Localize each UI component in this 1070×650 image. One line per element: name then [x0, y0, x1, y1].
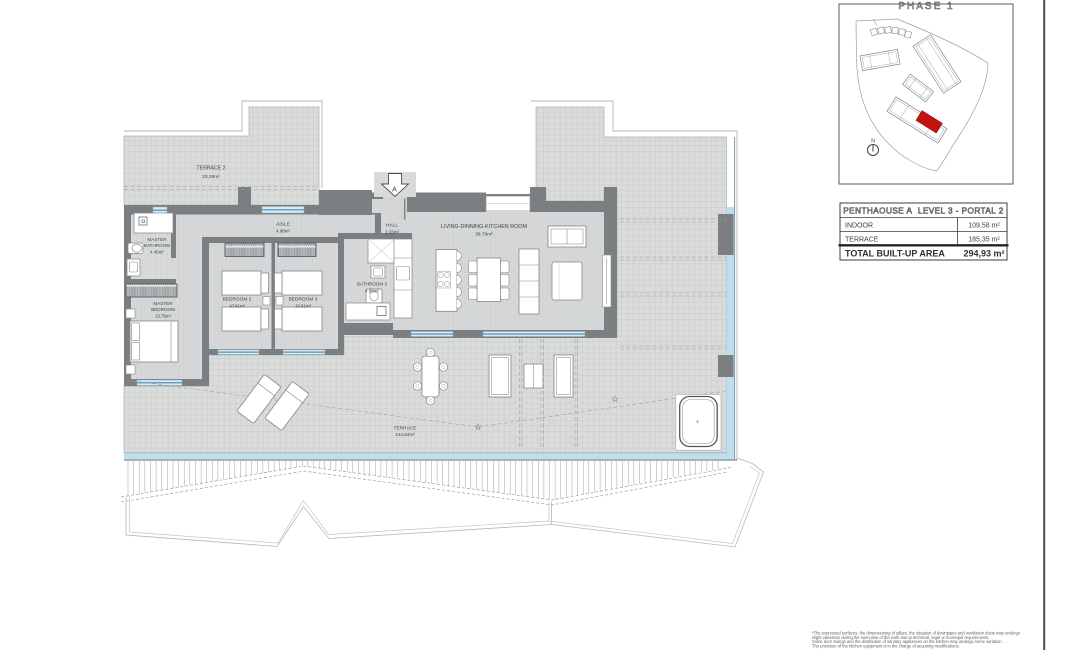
- svg-text:A: A: [392, 187, 397, 194]
- svg-text:TERRACE 2: TERRACE 2: [196, 166, 225, 172]
- svg-text:BEDROOM 3: BEDROOM 3: [289, 297, 318, 303]
- svg-text:4.88m²: 4.88m²: [365, 289, 379, 294]
- svg-text:BATHROOM: BATHROOM: [144, 243, 170, 248]
- svg-text:144.84m²: 144.84m²: [395, 432, 415, 437]
- svg-text:185,35 m²: 185,35 m²: [968, 237, 1000, 244]
- svg-text:TERRACE: TERRACE: [394, 426, 417, 432]
- svg-text:294,93 m²: 294,93 m²: [963, 249, 1004, 259]
- svg-text:BEDROOM 2: BEDROOM 2: [223, 297, 252, 303]
- svg-text:N: N: [871, 139, 875, 145]
- svg-text:BATHROOM 2: BATHROOM 2: [357, 282, 387, 287]
- svg-text:23.28m²: 23.28m²: [202, 174, 220, 180]
- svg-text:TERRACE: TERRACE: [845, 237, 879, 244]
- svg-text:BEDROOM: BEDROOM: [151, 307, 175, 312]
- svg-text:PHASE 1: PHASE 1: [898, 1, 954, 12]
- svg-text:TOTAL BUILT-UP AREA: TOTAL BUILT-UP AREA: [845, 249, 945, 259]
- svg-text:38.79m²: 38.79m²: [475, 232, 493, 238]
- svg-text:PENTHAOUSE A LEVEL 3 - PORTAL: PENTHAOUSE A LEVEL 3 - PORTAL 2: [843, 207, 1003, 216]
- svg-text:AISLE: AISLE: [276, 222, 290, 228]
- svg-text:LIVING-DINNING-KITCHEN ROOM: LIVING-DINNING-KITCHEN ROOM: [441, 224, 527, 230]
- svg-text:10.91m²: 10.91m²: [229, 304, 246, 309]
- svg-text:10.91m²: 10.91m²: [295, 304, 312, 309]
- svg-text:4.46m²: 4.46m²: [150, 250, 164, 255]
- svg-text:The provision of the kitchen e: The provision of the kitchen equipment i…: [812, 643, 960, 648]
- svg-text:INDOOR: INDOOR: [845, 223, 873, 230]
- svg-text:4.88m²: 4.88m²: [276, 229, 290, 234]
- svg-text:MASTER: MASTER: [147, 237, 167, 242]
- svg-text:109,58 m²: 109,58 m²: [968, 223, 1000, 230]
- svg-text:13.75m²: 13.75m²: [155, 314, 172, 319]
- svg-text:HALL: HALL: [386, 223, 398, 229]
- svg-text:2.33m²: 2.33m²: [385, 230, 399, 235]
- svg-text:MASTER: MASTER: [153, 301, 173, 306]
